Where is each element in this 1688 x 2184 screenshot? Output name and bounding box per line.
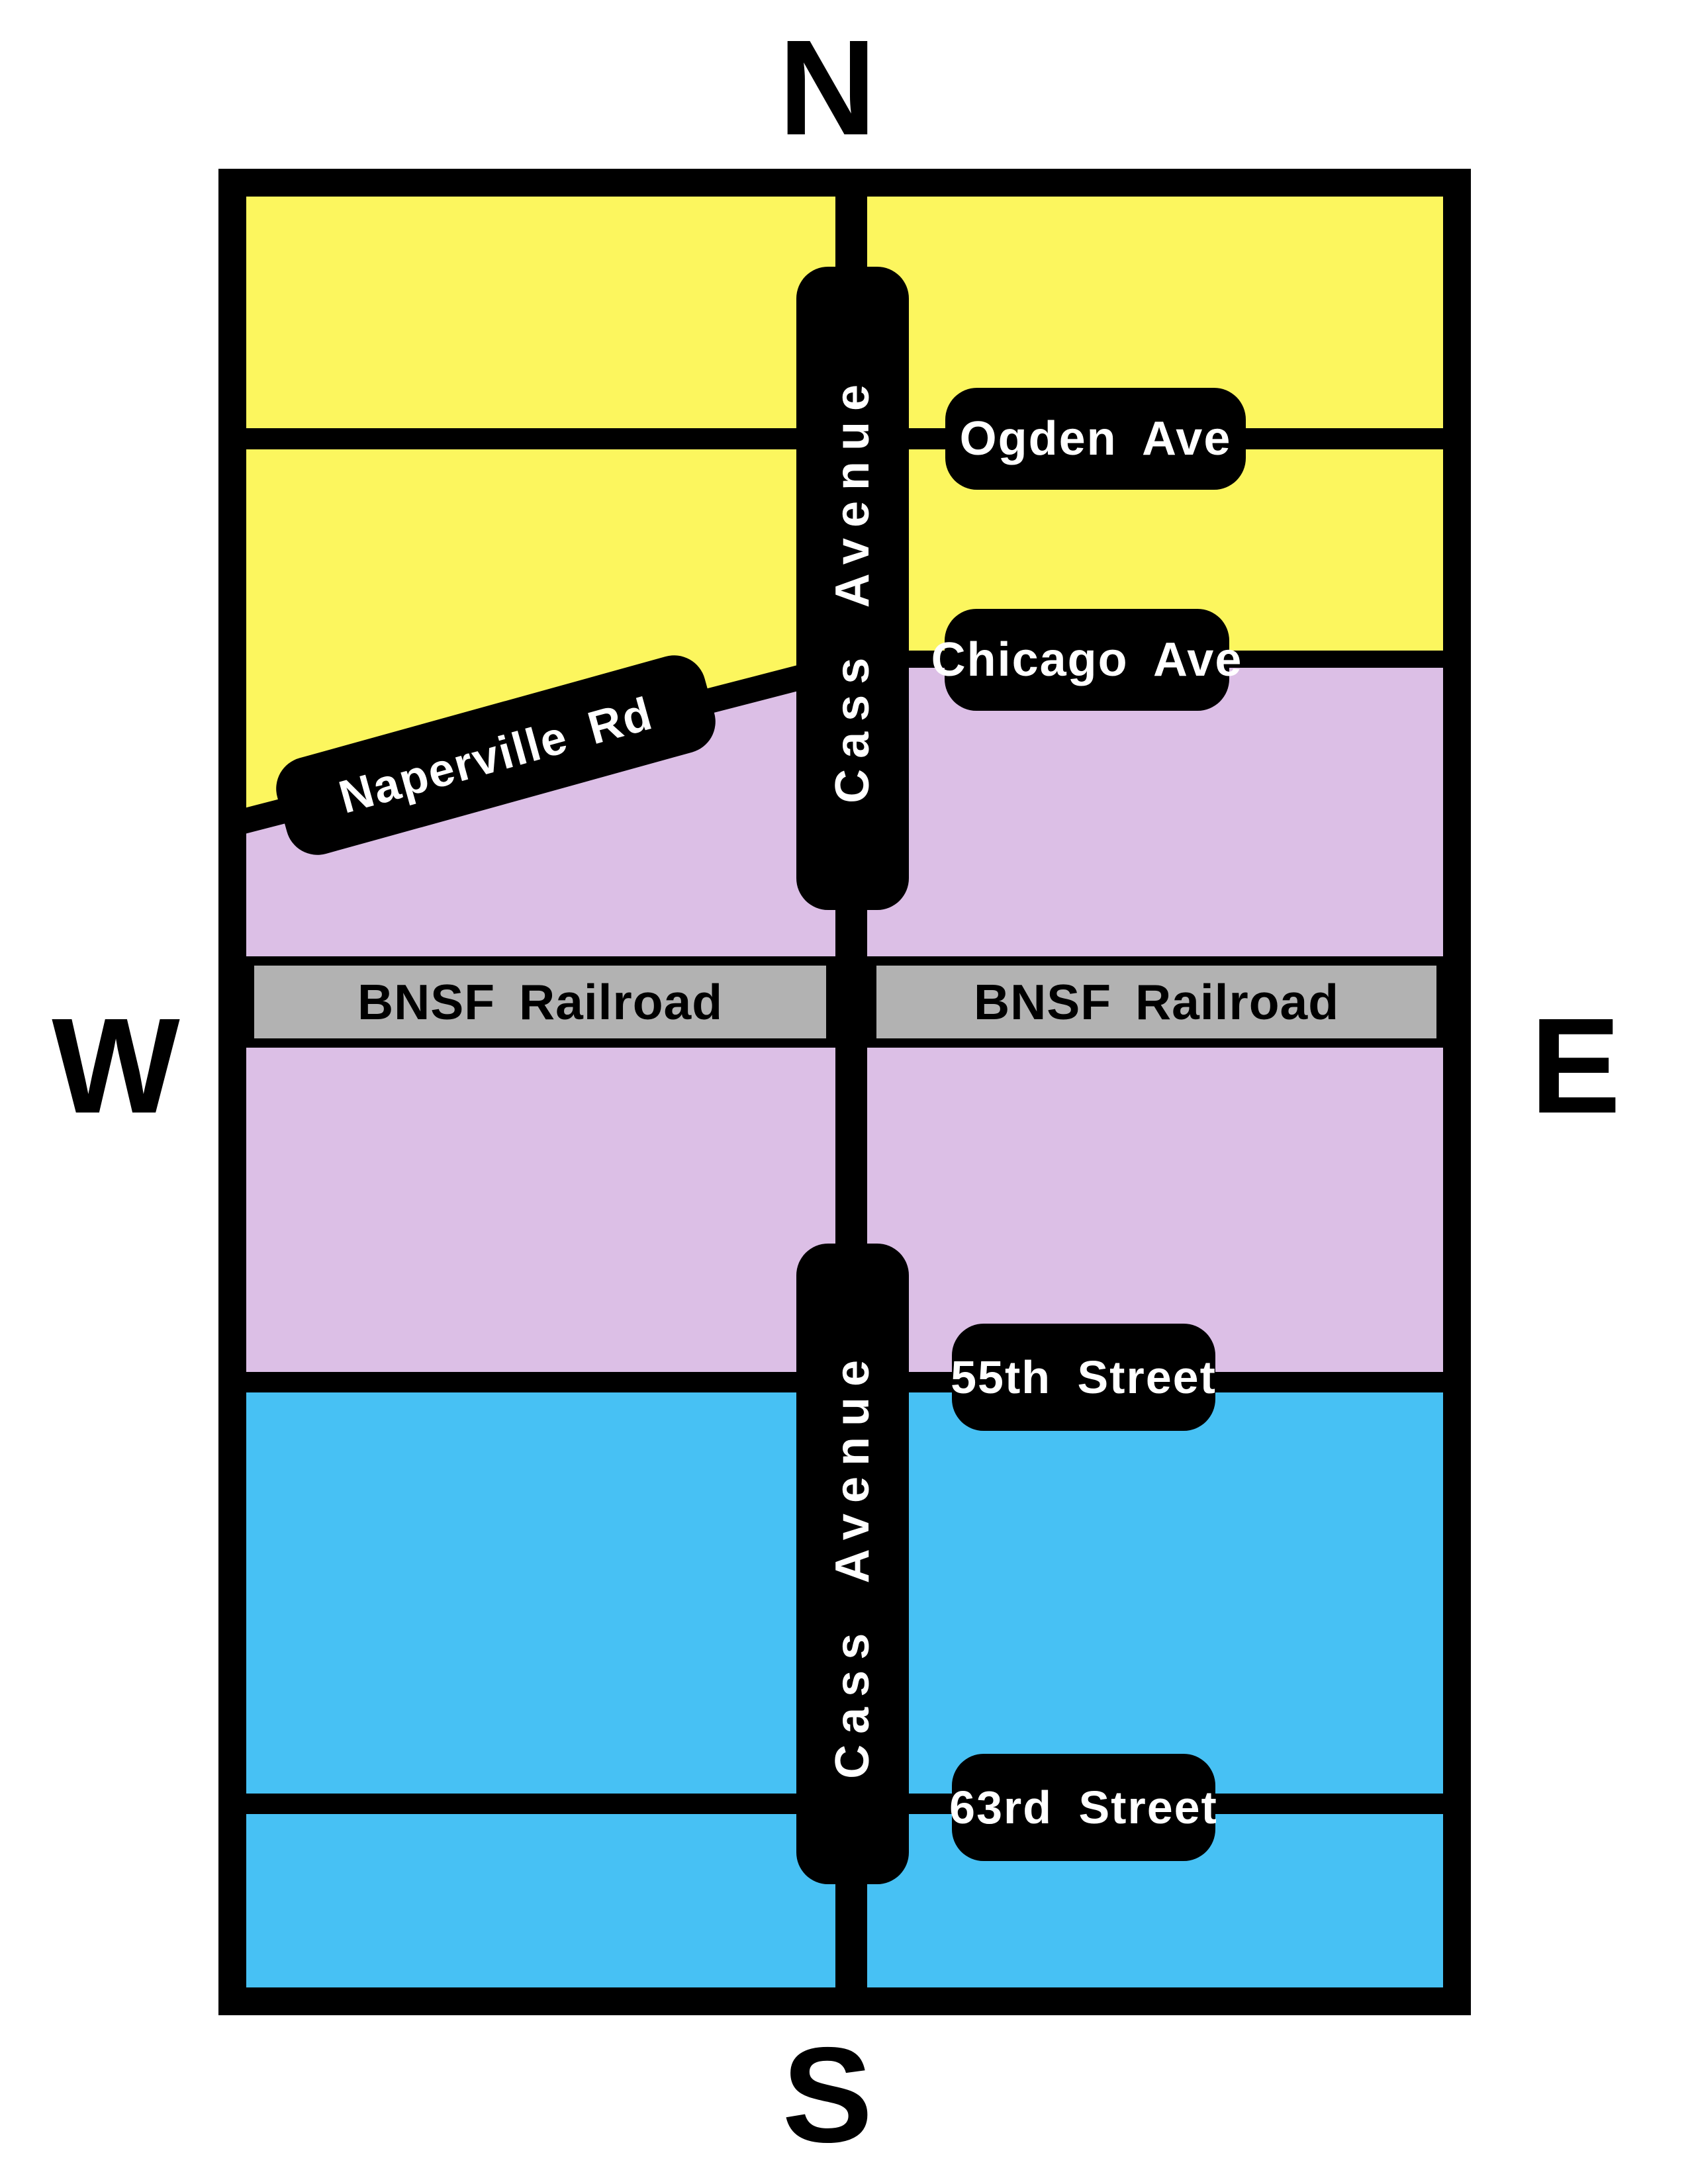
compass-south-label: S [751,2022,904,2167]
bnsf-railroad-label-east: BNSF Railroad [876,966,1436,1038]
map-canvas: N W E S Cass Avenue Cass Avenue Ogden Av… [0,0,1688,2184]
cass-avenue-sign-south-label: Cass Avenue [825,1349,880,1779]
compass-north-label: N [755,17,900,159]
63rd-street-sign: 63rd Street [952,1754,1215,1861]
cass-avenue-sign-south: Cass Avenue [796,1244,909,1884]
compass-west-label: W [26,989,205,1142]
cass-avenue-sign-north: Cass Avenue [796,267,909,910]
ogden-ave-sign: Ogden Ave [945,388,1246,490]
compass-east-label: E [1499,989,1652,1142]
55th-street-sign: 55th Street [952,1324,1215,1431]
bnsf-railroad-label-west: BNSF Railroad [254,966,826,1038]
cass-avenue-sign-north-label: Cass Avenue [825,374,880,803]
chicago-ave-sign: Chicago Ave [945,609,1229,711]
